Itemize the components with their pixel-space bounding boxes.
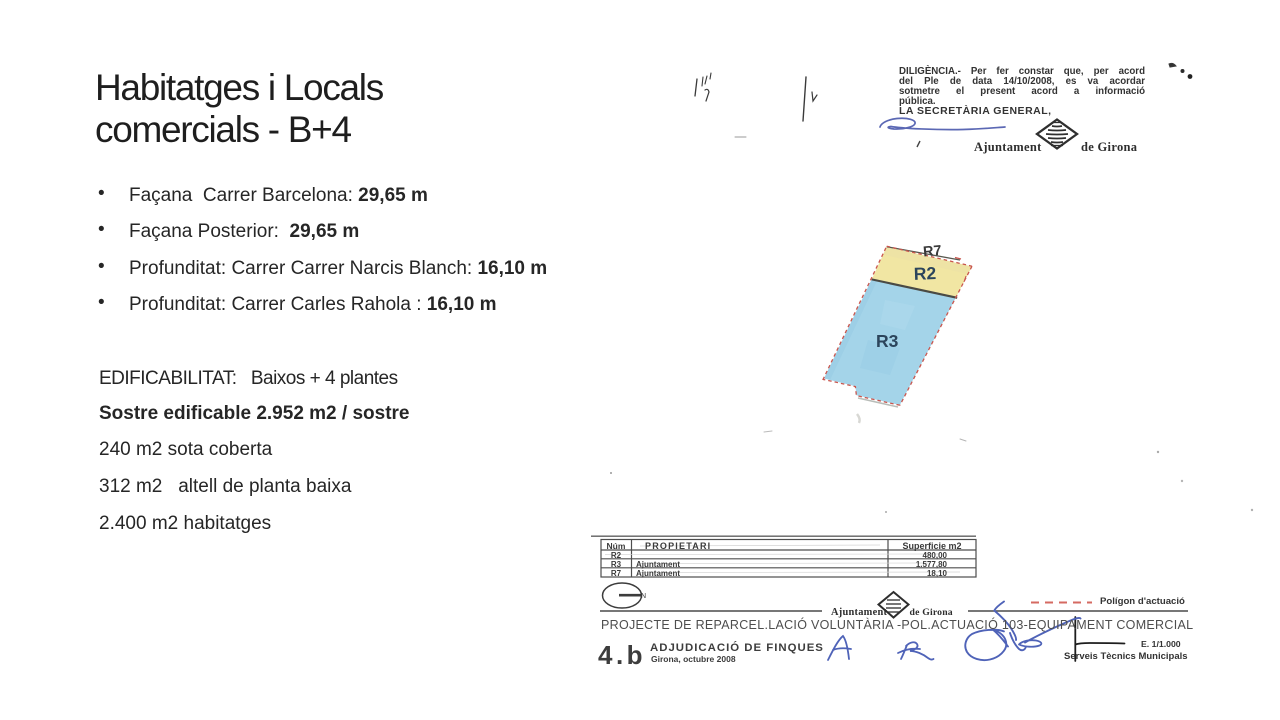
svg-text:R2: R2 — [913, 263, 936, 284]
svg-text:R3: R3 — [876, 331, 899, 351]
svg-text:R7: R7 — [922, 243, 942, 261]
svg-text:N: N — [641, 593, 646, 600]
